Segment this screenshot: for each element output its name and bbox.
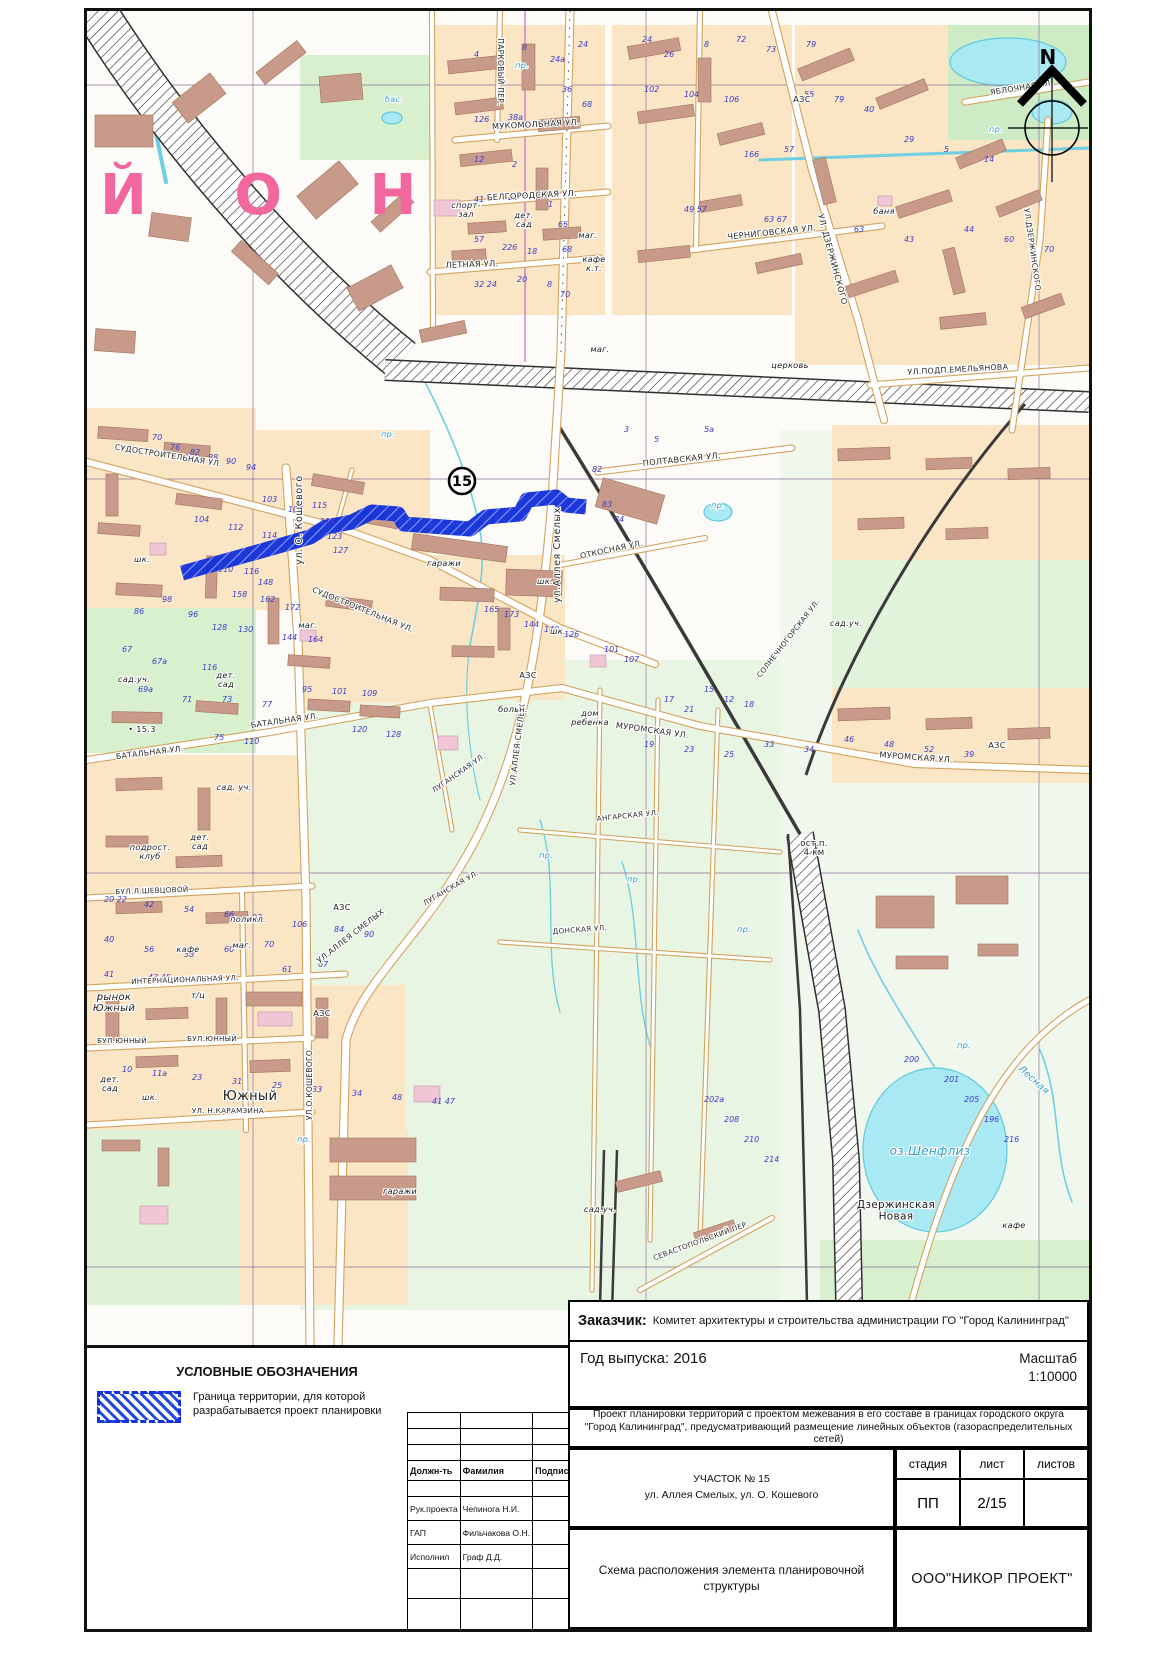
svg-text:73: 73 [222, 695, 232, 704]
signature-row [408, 1445, 577, 1461]
sheets-value [1025, 1480, 1087, 1526]
svg-text:79: 79 [834, 95, 844, 104]
svg-text:54: 54 [184, 905, 194, 914]
signature-row [408, 1429, 577, 1445]
svg-text:34: 34 [352, 1089, 362, 1098]
site-cell: УЧАСТОК № 15 ул. Аллея Смелых, ул. О. Ко… [568, 1448, 895, 1528]
svg-text:15: 15 [704, 685, 714, 694]
scale-value: 1:10000 [1028, 1369, 1077, 1384]
svg-text:48: 48 [884, 740, 894, 749]
svg-text:сад. уч.: сад. уч. [216, 782, 251, 792]
svg-text:пр.: пр. [627, 874, 641, 884]
svg-text:рынокЮжный: рынокЮжный [93, 992, 135, 1014]
signature-cell [460, 1413, 532, 1429]
stage-value: ПП [897, 1480, 959, 1526]
svg-text:сад.уч.: сад.уч. [118, 674, 150, 684]
svg-text:8: 8 [704, 40, 709, 49]
svg-text:112: 112 [228, 523, 243, 532]
svg-text:83: 83 [602, 500, 612, 509]
svg-text:116: 116 [202, 663, 217, 672]
svg-text:68: 68 [562, 245, 572, 254]
signature-cell: Рук.проекта [408, 1497, 461, 1521]
svg-text:41: 41 [104, 970, 114, 979]
svg-text:пр.: пр. [297, 1134, 311, 1144]
svg-text:73: 73 [766, 45, 776, 54]
svg-text:67а: 67а [152, 657, 167, 666]
legend-heading: УСЛОВНЫЕ ОБОЗНАЧЕНИЯ [87, 1364, 447, 1379]
svg-text:90: 90 [364, 930, 374, 939]
svg-text:N: N [1039, 45, 1056, 69]
customer-row: Заказчик: Комитет архитектуры и строител… [568, 1300, 1089, 1342]
svg-text:18: 18 [744, 700, 754, 709]
svg-text:65: 65 [558, 220, 568, 229]
signature-cell [408, 1481, 461, 1497]
svg-text:166: 166 [744, 150, 759, 159]
svg-text:127: 127 [333, 546, 349, 555]
svg-text:202а: 202а [704, 1095, 724, 1104]
svg-text:5: 5 [944, 145, 949, 154]
signature-cell [460, 1445, 532, 1461]
svg-text:63: 63 [854, 225, 864, 234]
svg-text:84: 84 [334, 925, 344, 934]
signature-cell: Граф Д.Д. [460, 1545, 532, 1569]
svg-text:шк.: шк. [142, 1092, 158, 1102]
svg-text:пр.: пр. [539, 850, 553, 860]
svg-text:123: 123 [327, 532, 342, 541]
sheet-value: 2/15 [961, 1480, 1023, 1526]
svg-text:110: 110 [218, 565, 233, 574]
svg-text:Южный: Южный [223, 1089, 277, 1104]
svg-text:164: 164 [308, 635, 323, 644]
svg-text:пр.: пр. [989, 124, 1003, 134]
svg-text:УЛ. Н.КАРАМЗИНА: УЛ. Н.КАРАМЗИНА [192, 1106, 264, 1115]
svg-text:Й О Н: Й О Н [100, 162, 450, 228]
svg-text:173: 173 [504, 610, 519, 619]
svg-text:31: 31 [232, 1077, 242, 1086]
svg-text:128: 128 [386, 730, 401, 739]
year-scale-row: Год выпуска: 2016 Масштаб 1:10000 [568, 1340, 1089, 1408]
svg-text:УЛ.О.КОШЕВОГО: УЛ.О.КОШЕВОГО [305, 1050, 314, 1120]
svg-text:маг.: маг. [232, 940, 251, 950]
svg-text:70: 70 [1044, 245, 1054, 254]
svg-text:• 15.3: • 15.3 [128, 724, 155, 734]
signature-cell [408, 1429, 461, 1445]
svg-text:82: 82 [592, 465, 602, 474]
svg-text:баня: баня [873, 206, 895, 216]
svg-text:200: 200 [904, 1055, 919, 1064]
svg-text:63 67: 63 67 [764, 215, 788, 224]
svg-text:32 24: 32 24 [474, 280, 497, 289]
svg-text:АЗС: АЗС [333, 902, 350, 912]
legend-text-line2: разрабатывается проект планировки [193, 1405, 381, 1417]
signature-cell [460, 1599, 532, 1630]
svg-text:пр.: пр. [711, 500, 725, 510]
svg-text:67: 67 [122, 645, 133, 654]
signature-cell: Исполнил [408, 1545, 461, 1569]
svg-text:214: 214 [764, 1155, 779, 1164]
legend-text-line1: Граница территории, для которой [193, 1391, 365, 1403]
svg-text:144: 144 [524, 620, 539, 629]
sheet-header: лист [961, 1450, 1023, 1478]
svg-text:60: 60 [1004, 235, 1014, 244]
svg-text:18: 18 [527, 247, 537, 256]
svg-text:107: 107 [624, 655, 640, 664]
svg-text:61: 61 [282, 965, 292, 974]
svg-text:11а: 11а [152, 1069, 167, 1078]
svg-text:43: 43 [904, 235, 914, 244]
svg-text:42: 42 [144, 900, 154, 909]
svg-text:4: 4 [474, 50, 479, 59]
svg-text:57: 57 [474, 235, 485, 244]
signature-cell: Фильчакова О.Н. [460, 1521, 532, 1545]
svg-text:оз.Шенфлиз: оз.Шенфлиз [890, 1144, 971, 1158]
svg-text:шк.: шк. [537, 576, 553, 586]
svg-text:ост.п.4 км: ост.п.4 км [800, 839, 828, 858]
svg-text:АЗС: АЗС [988, 740, 1005, 750]
svg-text:гаражи: гаражи [427, 558, 461, 568]
svg-text:96: 96 [188, 610, 198, 619]
svg-text:103: 103 [262, 495, 277, 504]
svg-text:39: 39 [964, 750, 974, 759]
svg-text:110: 110 [244, 737, 259, 746]
customer-value: Комитет архитектуры и строительства адми… [653, 1315, 1069, 1327]
svg-text:106: 106 [292, 920, 307, 929]
svg-text:165: 165 [484, 605, 499, 614]
svg-text:70: 70 [264, 940, 274, 949]
svg-text:162: 162 [260, 595, 275, 604]
svg-text:119: 119 [320, 517, 335, 526]
svg-text:77: 77 [262, 700, 273, 709]
svg-text:104: 104 [684, 90, 699, 99]
svg-text:41 47: 41 47 [432, 1097, 456, 1106]
svg-text:26: 26 [664, 50, 674, 59]
svg-text:маг.: маг. [578, 230, 597, 240]
svg-text:шк.: шк. [550, 626, 566, 636]
svg-text:12: 12 [724, 695, 734, 704]
svg-text:126: 126 [564, 630, 579, 639]
city-map: 7076828890941031071041121141151191231271… [87, 11, 1089, 1345]
project-description: Проект планировки территорий с проектом … [568, 1408, 1089, 1448]
svg-text:больн.: больн. [498, 704, 528, 714]
svg-text:ЛЕТНАЯ УЛ.: ЛЕТНАЯ УЛ. [445, 258, 498, 270]
svg-text:пр.: пр. [381, 429, 395, 439]
site-marker: 15 [449, 468, 475, 494]
svg-text:АЗС: АЗС [793, 94, 810, 104]
svg-text:158: 158 [232, 590, 247, 599]
svg-text:25: 25 [724, 750, 734, 759]
signature-cell [408, 1413, 461, 1429]
svg-text:ПАРКОВЫЙ ПЕР.: ПАРКОВЫЙ ПЕР. [496, 38, 505, 105]
svg-text:48: 48 [392, 1093, 402, 1102]
svg-text:5: 5 [654, 435, 659, 444]
boundary-swatch [97, 1391, 181, 1423]
svg-text:205: 205 [964, 1095, 979, 1104]
svg-text:БУЛ.ЮННЫЙ: БУЛ.ЮННЫЙ [97, 1036, 147, 1045]
signature-row: ИсполнилГраф Д.Д. [408, 1545, 577, 1569]
signature-cell: Фамилия [460, 1461, 532, 1481]
signature-cell [460, 1481, 532, 1497]
site-title: УЧАСТОК № 15 [693, 1472, 770, 1488]
svg-text:40: 40 [104, 935, 114, 944]
svg-text:49 57: 49 57 [684, 205, 708, 214]
svg-text:46: 46 [844, 735, 854, 744]
signature-cell: Чепинога Н.И. [460, 1497, 532, 1521]
svg-text:115: 115 [312, 501, 327, 510]
signature-row [408, 1413, 577, 1429]
svg-text:маг.: маг. [298, 620, 317, 630]
svg-text:3: 3 [624, 425, 629, 434]
svg-text:216: 216 [1004, 1135, 1019, 1144]
svg-text:20: 20 [517, 275, 527, 284]
map-svg: 7076828890941031071041121141151191231271… [87, 11, 1089, 1345]
signature-row: Рук.проектаЧепинога Н.И. [408, 1497, 577, 1521]
signature-row [408, 1569, 577, 1599]
svg-text:8: 8 [522, 43, 527, 52]
svg-text:сад.уч.: сад.уч. [584, 1204, 616, 1214]
svg-text:98: 98 [162, 595, 172, 604]
svg-text:128: 128 [212, 623, 227, 632]
svg-text:БУЛ.ЮННЫЙ: БУЛ.ЮННЫЙ [187, 1034, 237, 1043]
svg-text:17: 17 [664, 695, 675, 704]
svg-text:10: 10 [122, 1065, 132, 1074]
svg-text:90: 90 [226, 457, 236, 466]
stage-sheet-grid: стадия лист листов ПП 2/15 [895, 1448, 1089, 1528]
svg-text:196: 196 [984, 1115, 999, 1124]
svg-text:23: 23 [684, 745, 694, 754]
svg-text:208: 208 [724, 1115, 739, 1124]
svg-text:120: 120 [352, 725, 367, 734]
svg-text:14: 14 [984, 155, 994, 164]
svg-text:79: 79 [806, 40, 816, 49]
plan-sheet-page: 7076828890941031071041121141151191231271… [0, 0, 1169, 1654]
signature-row [408, 1481, 577, 1497]
svg-text:130: 130 [238, 625, 253, 634]
svg-text:101: 101 [604, 645, 619, 654]
svg-text:95: 95 [302, 685, 312, 694]
svg-text:57: 57 [784, 145, 795, 154]
svg-text:24: 24 [578, 40, 588, 49]
svg-text:24а: 24а [550, 55, 565, 64]
svg-text:70: 70 [152, 433, 162, 442]
svg-text:56: 56 [144, 945, 154, 954]
scale-block: Масштаб 1:10000 [1019, 1350, 1077, 1406]
svg-text:84: 84 [614, 515, 624, 524]
svg-text:102: 102 [644, 85, 659, 94]
svg-text:71: 71 [182, 695, 192, 704]
svg-text:ул. О. Кошевого: ул. О. Кошевого [294, 475, 305, 565]
signature-cell [460, 1429, 532, 1445]
signature-row [408, 1599, 577, 1630]
svg-text:ул.Аллея Смелых: ул.Аллея Смелых [552, 507, 563, 603]
svg-text:86: 86 [134, 607, 144, 616]
svg-text:23: 23 [192, 1073, 202, 1082]
company-name: ООО"НИКОР ПРОЕКТ" [895, 1528, 1089, 1629]
svg-text:маг.: маг. [590, 344, 609, 354]
svg-text:101: 101 [332, 687, 347, 696]
svg-text:116: 116 [244, 567, 259, 576]
signature-table: Должн-тьФамилияПодписьРук.проектаЧепиног… [407, 1412, 577, 1630]
signature-row: ГАПФильчакова О.Н. [408, 1521, 577, 1545]
svg-text:172: 172 [285, 603, 300, 612]
svg-text:126: 126 [474, 115, 489, 124]
svg-text:33: 33 [764, 740, 774, 749]
svg-text:24: 24 [642, 35, 652, 44]
svg-text:34: 34 [804, 745, 814, 754]
svg-text:94: 94 [246, 463, 256, 472]
year-label: Год выпуска: 2016 [580, 1350, 707, 1406]
svg-text:114: 114 [262, 531, 277, 540]
svg-text:дет.сад: дет.сад [99, 1074, 119, 1093]
signature-cell [408, 1569, 461, 1599]
svg-text:шк.: шк. [134, 554, 150, 564]
svg-text:кафе: кафе [1002, 1220, 1025, 1230]
svg-text:36: 36 [562, 85, 572, 94]
svg-text:21: 21 [684, 705, 694, 714]
svg-text:144: 144 [282, 633, 297, 642]
signature-cell [408, 1445, 461, 1461]
svg-text:гаражи: гаражи [383, 1186, 417, 1196]
scheme-title: Схема расположения элемента планировочно… [568, 1528, 895, 1629]
svg-text:75: 75 [214, 733, 224, 742]
svg-text:дет.сад: дет.сад [189, 832, 209, 851]
svg-text:пр.: пр. [957, 1040, 971, 1050]
signature-cell [408, 1599, 461, 1630]
stage-header: стадия [897, 1450, 959, 1478]
svg-text:дет.сад: дет.сад [513, 210, 533, 229]
svg-text:АЗС: АЗС [313, 1008, 330, 1018]
svg-text:72: 72 [736, 35, 746, 44]
svg-text:кафе: кафе [176, 944, 199, 954]
svg-text:5а: 5а [704, 425, 714, 434]
svg-text:226: 226 [502, 243, 517, 252]
svg-text:поликл.: поликл. [230, 914, 266, 924]
svg-text:106: 106 [724, 95, 739, 104]
legend-item-text: Граница территории, для которой разрабат… [193, 1391, 381, 1419]
svg-text:109: 109 [362, 689, 377, 698]
svg-text:68: 68 [582, 100, 592, 109]
signature-cell [460, 1569, 532, 1599]
svg-text:70: 70 [560, 290, 570, 299]
svg-text:бас.: бас. [385, 94, 403, 104]
svg-text:40: 40 [864, 105, 874, 114]
svg-text:АЗС: АЗС [519, 670, 536, 680]
svg-text:29: 29 [904, 135, 914, 144]
svg-text:пр.: пр. [515, 60, 529, 70]
signature-header-row: Должн-тьФамилияПодпись [408, 1461, 577, 1481]
scale-label: Масштаб [1019, 1351, 1077, 1366]
sheets-header: листов [1025, 1450, 1087, 1478]
svg-text:44: 44 [964, 225, 974, 234]
svg-text:2: 2 [512, 160, 517, 169]
svg-text:69а: 69а [138, 685, 153, 694]
svg-text:148: 148 [258, 578, 273, 587]
svg-text:210: 210 [744, 1135, 759, 1144]
svg-text:пр.: пр. [737, 924, 751, 934]
svg-text:104: 104 [194, 515, 209, 524]
svg-text:т/ц: т/ц [191, 990, 205, 1000]
svg-text:дет.сад: дет.сад [215, 670, 235, 689]
svg-text:сад.уч.: сад.уч. [830, 618, 862, 628]
svg-text:15: 15 [452, 474, 472, 490]
svg-text:20 22: 20 22 [104, 895, 127, 904]
svg-text:201: 201 [944, 1075, 959, 1084]
svg-text:церковь: церковь [771, 360, 809, 370]
svg-text:12: 12 [474, 155, 484, 164]
customer-label: Заказчик: [578, 1313, 647, 1329]
signature-cell: Должн-ть [408, 1461, 461, 1481]
svg-text:8: 8 [547, 280, 552, 289]
site-subtitle: ул. Аллея Смелых, ул. О. Кошевого [645, 1488, 819, 1504]
svg-text:1: 1 [548, 200, 553, 209]
svg-text:19: 19 [644, 740, 654, 749]
signature-cell: ГАП [408, 1521, 461, 1545]
